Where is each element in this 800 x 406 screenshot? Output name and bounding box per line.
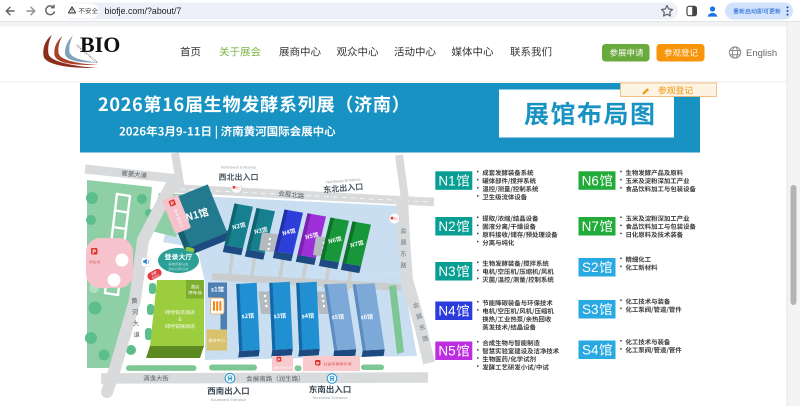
svg-text:N1: N1: [438, 174, 455, 189]
svg-text:N7: N7: [582, 219, 599, 234]
svg-text:N4: N4: [438, 304, 456, 319]
svg-text:N6: N6: [582, 174, 599, 189]
svg-text:P: P: [92, 250, 96, 256]
svg-text:N3: N3: [438, 264, 455, 279]
svg-text:S4: S4: [582, 343, 599, 358]
svg-text:Southwest Entrance: Southwest Entrance: [211, 397, 248, 402]
svg-text:S2: S2: [582, 260, 599, 275]
svg-text:English: English: [746, 48, 777, 59]
svg-text:N5: N5: [438, 344, 455, 359]
svg-text:N2: N2: [438, 219, 455, 234]
svg-text:Northwest Entrance: Northwest Entrance: [221, 165, 257, 170]
svg-text:P: P: [316, 361, 319, 366]
svg-text:P: P: [278, 357, 281, 362]
svg-text:S3: S3: [582, 302, 599, 317]
svg-text:Southeast Entrance: Southeast Entrance: [312, 395, 348, 400]
svg-text:biofje.com/?about/7: biofje.com/?about/7: [105, 6, 182, 16]
